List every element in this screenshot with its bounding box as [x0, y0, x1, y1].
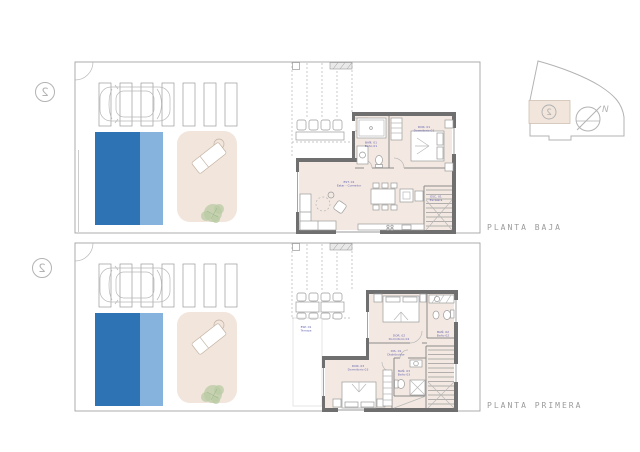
meter-box [293, 63, 300, 70]
window-bed1 [452, 128, 456, 154]
pillow [386, 297, 400, 302]
cabinet [415, 191, 423, 201]
nightstand [445, 163, 453, 171]
meter-box [293, 244, 300, 251]
ac-unit [330, 63, 352, 70]
unit-marker-first: 2 [33, 259, 52, 278]
drawing-sheet: BAÑ. 01 Baño 01 DOR. 01 Dormitorio 01 ES… [0, 0, 640, 452]
room-label: Dormitorio 01 [414, 129, 435, 133]
toilet [444, 311, 451, 320]
window-living [336, 230, 380, 234]
nightstand [333, 399, 341, 407]
room-label: Dormitorio 03 [348, 368, 369, 372]
pillow [403, 297, 417, 302]
window-right-2 [454, 364, 458, 382]
site-key: 2 N [529, 61, 624, 140]
room-label: Baño 03 [398, 373, 410, 377]
outdoor-dining [296, 120, 344, 140]
bidet [433, 311, 439, 319]
fridge [400, 189, 413, 202]
gate-arc [75, 62, 93, 80]
shower [357, 118, 386, 138]
pillow [361, 402, 374, 407]
ac-unit [330, 244, 352, 251]
pillow [345, 402, 358, 407]
gate-arc [75, 243, 93, 261]
room-label: Baño 01 [365, 144, 377, 148]
pergola [292, 243, 352, 319]
window-bottom [338, 408, 364, 412]
room-label: Baño 02 [437, 333, 449, 337]
dining-table [371, 189, 395, 204]
toilet [398, 380, 405, 389]
room-label: Escalera [430, 198, 443, 202]
vanity [357, 146, 368, 164]
room-label: Terraza [300, 329, 312, 333]
nightstand [445, 120, 453, 128]
plan-title-ground: PLANTA BAJA [487, 223, 562, 232]
unit-marker-ground: 2 [36, 83, 55, 102]
sheet-planta-primera: ESP. 01 Terraza [33, 243, 583, 412]
nightstand [420, 294, 426, 302]
sheet-planta-baja: BAÑ. 01 Baño 01 DOR. 01 Dormitorio 01 ES… [36, 62, 562, 234]
svg-text:2: 2 [38, 261, 45, 275]
svg-text:2: 2 [41, 85, 48, 99]
pillow [437, 133, 443, 145]
plan-title-first: PLANTA PRIMERA [487, 401, 582, 410]
pillow [437, 147, 443, 159]
room-label: Distribuidor [387, 352, 405, 356]
pergola [292, 62, 352, 158]
outdoor-dining [296, 293, 344, 319]
wardrobe [391, 118, 402, 140]
floorplan-svg: BAÑ. 01 Baño 01 DOR. 01 Dormitorio 01 ES… [0, 0, 640, 452]
svg-text:2: 2 [546, 108, 551, 118]
window-right-1 [454, 300, 458, 322]
room-label: Dormitorio 02 [389, 337, 410, 341]
north-label: N [602, 105, 609, 115]
nightstand [374, 294, 382, 302]
room-label: Estar - Comedor [337, 184, 362, 188]
toilet [376, 156, 383, 165]
